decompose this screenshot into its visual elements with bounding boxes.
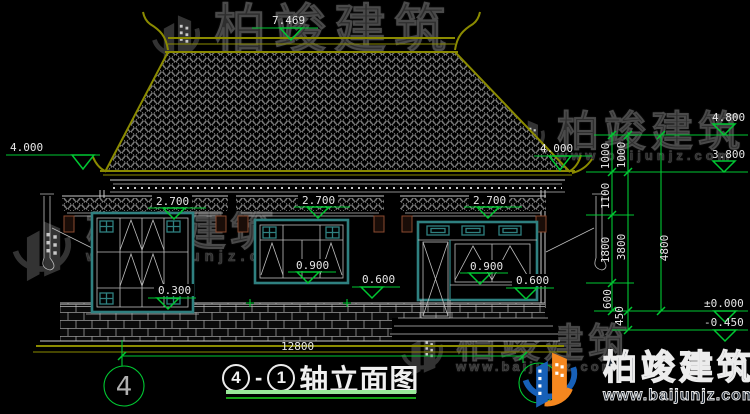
mark-wall2-value: 0.600 [516,274,549,287]
brand-logo-text: 柏竣建筑 [603,351,750,387]
mark-sill-middle-value: 0.900 [296,259,329,272]
title-dash: - [255,365,262,391]
mark-ground-value: ±0.000 [704,297,744,310]
dim-seg-1000a: 1000 [599,143,612,170]
dim-overall-width: 12800 [281,340,314,353]
mark-wall1-value: 0.600 [362,273,395,286]
mark-canopy1-value: 2.700 [156,195,189,208]
mark-sill-right-value: 0.900 [470,260,503,273]
mark-ridge-value: 7.469 [272,14,305,27]
brand-logo-icon [505,342,597,414]
dim-seg-450: 450 [613,306,626,326]
mark-eave-right-value: 4.000 [540,142,573,155]
mark-4800-value: 4.800 [712,111,745,124]
mark-canopy3-value: 2.700 [473,194,506,207]
elevation-mark-footing: -0.450 [704,316,744,341]
dim-seg-600: 600 [601,289,614,309]
axis-left-number: 4 [116,372,133,402]
cad-elevation-drawing: 柏竣建筑 www.baijunjz.com 柏竣建筑 www.baijunjz.… [0,0,750,414]
mark-low-sill-value: 0.300 [158,284,191,297]
dim-overall-height: 4800 [658,235,671,262]
dim-seg-3800: 3800 [615,234,628,261]
elevation-mark-wall-1: 0.600 [352,273,400,298]
elevation-mark-4800: 4.800 [712,111,745,135]
elevation-mark-ridge: 7.469 [252,14,318,40]
mark-3800-value: 3.800 [712,148,745,161]
dim-seg-1800: 1800 [599,237,612,264]
window-middle [255,220,348,283]
elevation-mark-3800: 3.800 [712,148,745,172]
title-axis-circle-1: 1 [267,364,295,392]
title-axis-circle-4: 4 [222,364,250,392]
dim-seg-1100: 1100 [599,183,612,210]
window-left [86,213,199,314]
title-underline-thick [226,390,416,394]
mark-eave-left-value: 4.000 [10,141,43,154]
main-roof [105,12,570,172]
brand-logo: 柏竣建筑 www.baijunjz.com [505,342,750,414]
title-underline-thin [226,397,416,399]
elevation-mark-eave-left: 4.000 [6,141,100,169]
mark-footing-value: -0.450 [704,316,744,329]
brand-logo-url: www.baijunjz.com [603,387,750,405]
dim-seg-1000b: 1000 [615,142,628,169]
mark-canopy2-value: 2.700 [302,194,335,207]
axis-bubble-left: 4 [104,340,144,406]
